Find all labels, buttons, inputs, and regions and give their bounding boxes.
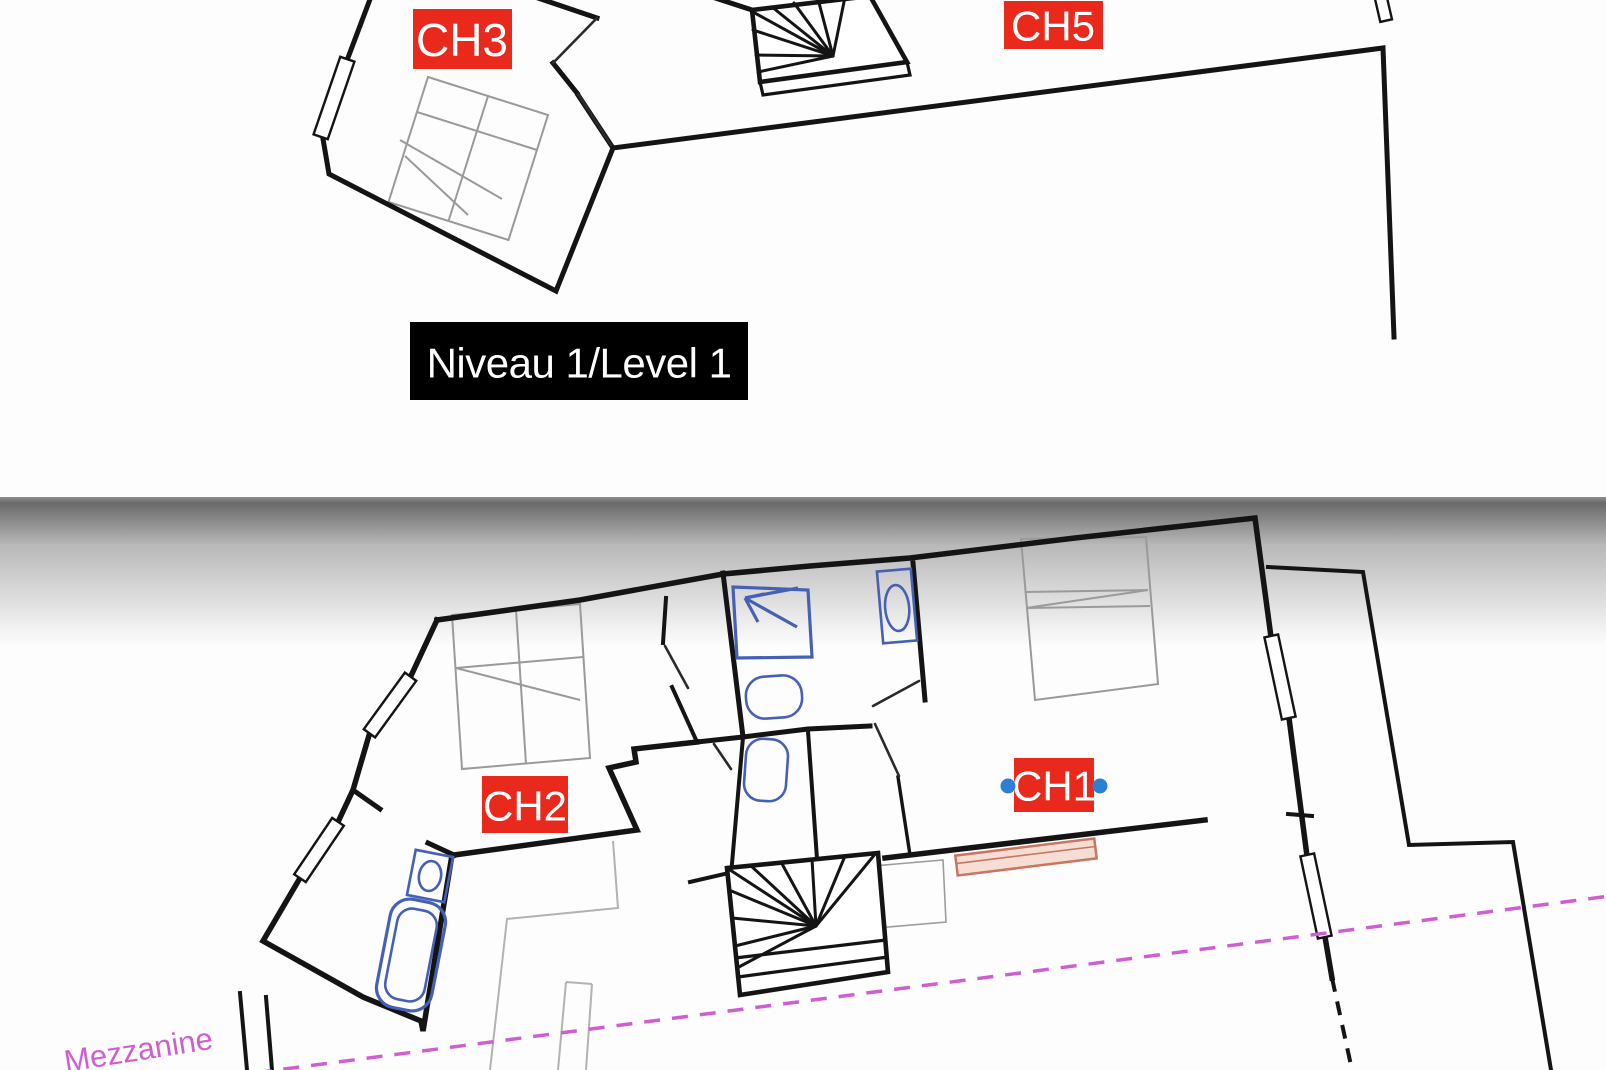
room-label-ch2[interactable]: CH2 — [482, 776, 568, 833]
headroom-line — [558, 982, 592, 1070]
door-leaf — [873, 681, 919, 706]
svg-text:CH1: CH1 — [1012, 763, 1096, 810]
svg-text:CH3: CH3 — [416, 14, 508, 66]
wc-left-wall — [731, 737, 743, 875]
door-leaf — [875, 724, 899, 776]
ch3-room-walls — [322, 0, 752, 291]
toilet-fixture — [745, 674, 804, 720]
wc-right-wall — [808, 731, 818, 873]
window — [364, 673, 416, 738]
corridor-wall — [613, 48, 1394, 337]
level1-title: Niveau 1/Level 1 — [410, 322, 748, 400]
mezzanine-title: Mezzanine — [62, 1021, 216, 1070]
window — [1374, 0, 1392, 22]
door-leaf — [578, 94, 611, 145]
room-label-ch3[interactable]: CH3 — [413, 9, 512, 69]
level1-plan: CH3 CH5 Niveau 1/Level 1 — [314, 0, 1394, 400]
floor-plan-screenshot: CH3 CH5 Niveau 1/Level 1 — [0, 0, 1606, 1070]
wc-top-wall — [697, 726, 870, 742]
selection-handle-left — [1001, 779, 1016, 794]
toilet-fixture — [743, 738, 789, 803]
door-leaf — [714, 744, 731, 769]
staircase-mezzanine — [727, 853, 888, 995]
room-label-ch5[interactable]: CH5 — [1004, 1, 1103, 50]
room-label-ch1[interactable]: CH1 — [1001, 758, 1108, 812]
dashed-wall — [1332, 978, 1352, 1070]
bathroom-walls — [353, 790, 454, 855]
window — [294, 818, 344, 882]
staircase-level1 — [752, 0, 910, 95]
interior-wall — [672, 687, 697, 742]
wall-stub — [1288, 814, 1312, 816]
svg-text:CH2: CH2 — [483, 783, 567, 830]
window — [1300, 853, 1331, 938]
hall-wall — [898, 777, 910, 855]
svg-text:Niveau 1/Level 1: Niveau 1/Level 1 — [427, 340, 732, 387]
left-wall-lower — [240, 993, 272, 1070]
building-left-wall — [263, 620, 452, 1031]
mezzanine-section-line — [200, 896, 1606, 1070]
door-leaf — [665, 646, 688, 688]
door-leaf — [553, 18, 597, 63]
window — [314, 57, 355, 139]
headroom-line — [490, 841, 618, 1070]
svg-text:CH5: CH5 — [1011, 3, 1095, 50]
radiator — [955, 839, 1096, 876]
selection-handle-right — [1093, 779, 1108, 794]
